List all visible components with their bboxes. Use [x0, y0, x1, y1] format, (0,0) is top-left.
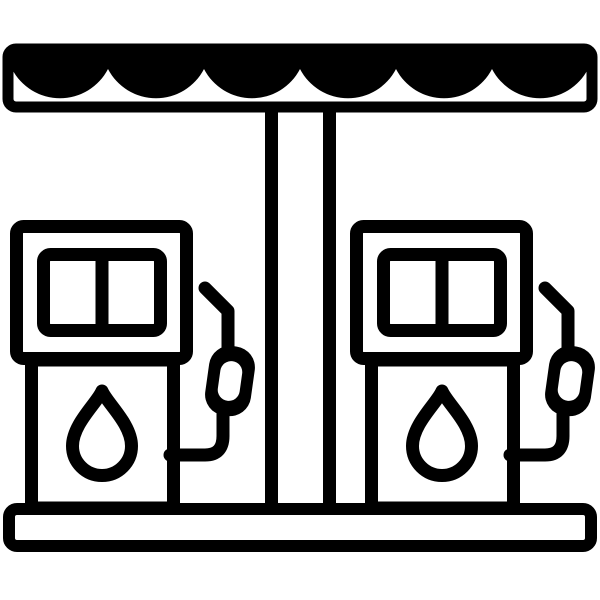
gas-station-svg: [0, 0, 600, 600]
support-pillar: [272, 105, 330, 510]
base-platform: [9, 509, 591, 546]
pump-hose-upper: [205, 288, 228, 356]
pump-nozzle: [202, 343, 257, 419]
fuel-pump-right: [357, 227, 598, 509]
gas-station-icon: [0, 0, 600, 600]
fuel-pump-left: [17, 227, 258, 509]
